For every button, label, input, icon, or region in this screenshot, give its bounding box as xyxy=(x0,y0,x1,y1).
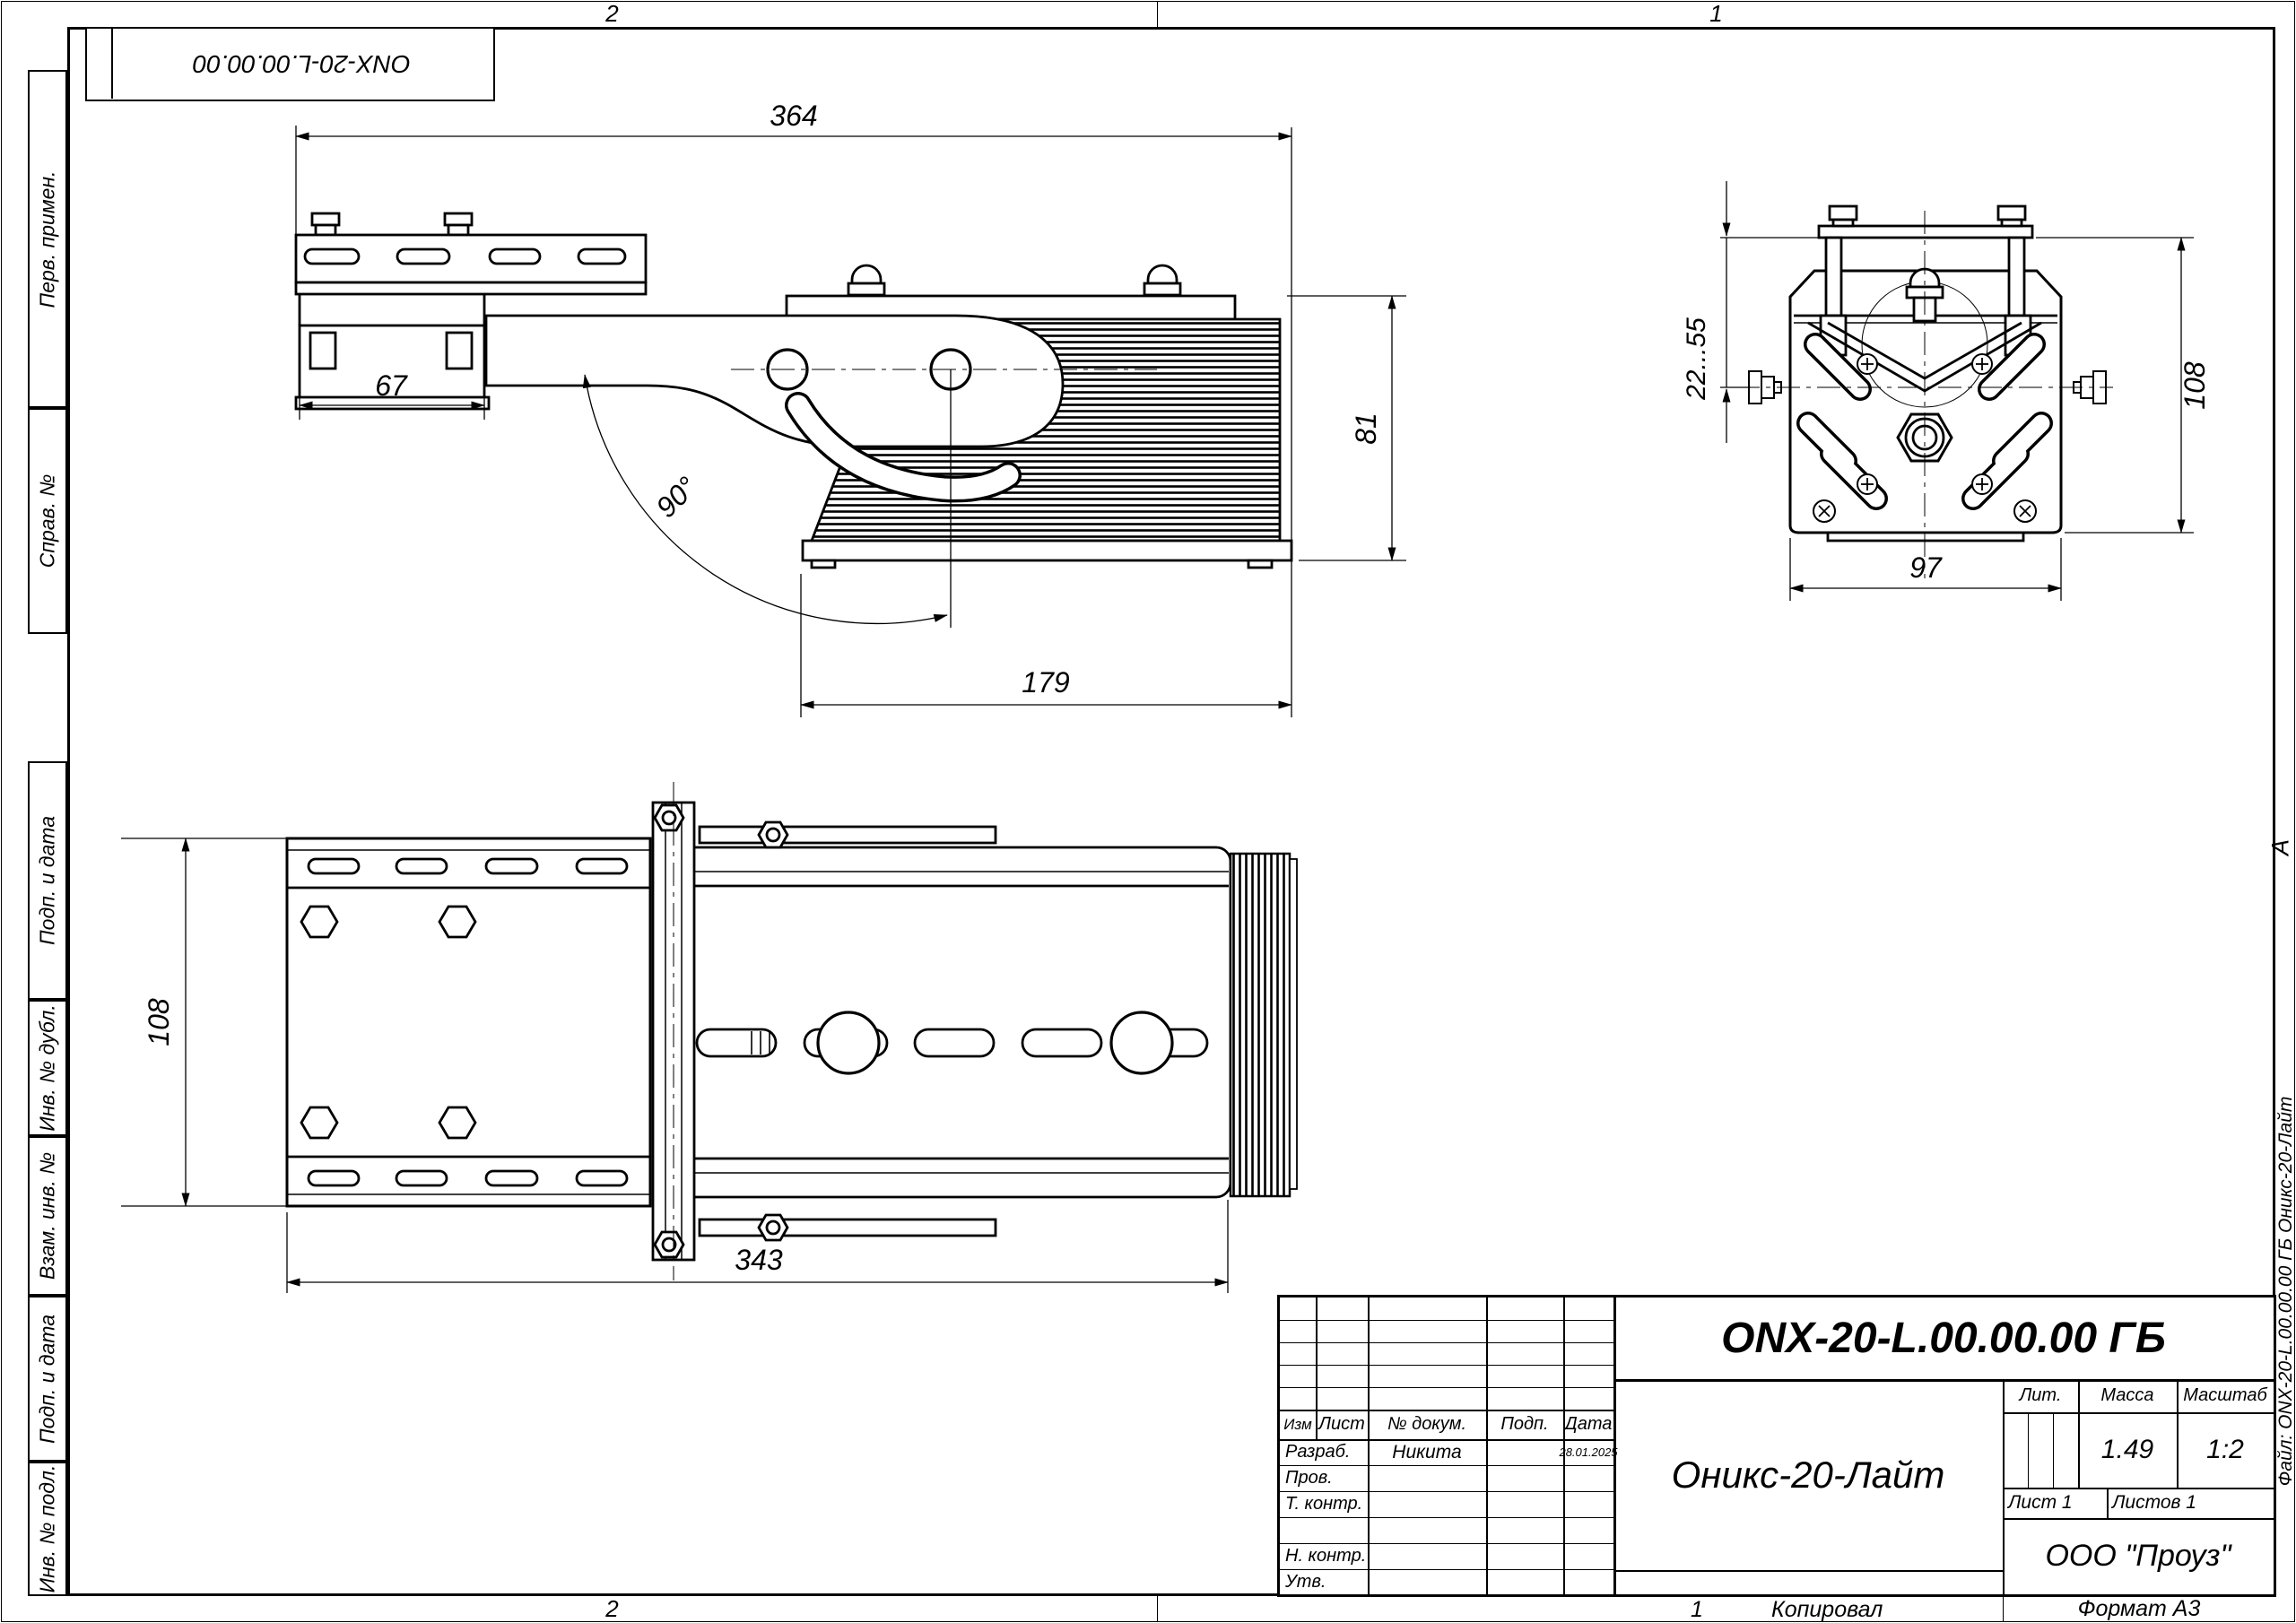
zone-top-1: 1 xyxy=(1157,1,2275,26)
stamp-inv-podl: Инв. № подл. xyxy=(28,1462,67,1596)
top-designation-stamp: ONX-20-L.00.00.00 xyxy=(85,27,495,101)
drawing-sheet: { "page": { "zone_top_left": "2", "zone_… xyxy=(0,0,2296,1623)
zone-divider xyxy=(1157,1596,1158,1622)
copied-label: Копировал xyxy=(1771,1597,1883,1623)
stamp-label: Подп. и дата xyxy=(36,1315,60,1444)
zone-marker-a: А xyxy=(2267,807,2294,888)
zone-number: 1 xyxy=(1709,0,1722,28)
col-podp: Подп. xyxy=(1486,1410,1563,1439)
col-doc: № докум. xyxy=(1368,1410,1486,1439)
col-izm: Изм xyxy=(1280,1410,1316,1439)
col-list: Лист xyxy=(1316,1410,1368,1439)
col-data: Дата xyxy=(1563,1410,1613,1439)
row-role: Утв. xyxy=(1280,1569,1368,1594)
zone-bottom-2: 2 xyxy=(67,1597,1157,1621)
zone-number: 2 xyxy=(605,1595,618,1623)
stamp-label: Взам. инв. № xyxy=(36,1152,60,1280)
stamp-podp-data-2: Подп. и дата xyxy=(28,1296,67,1462)
zone-divider xyxy=(1157,1,1158,27)
row-role: Пров. xyxy=(1280,1465,1368,1491)
zone-letter: А xyxy=(2267,839,2295,855)
stamp-inv-dubl: Инв. № дубл. xyxy=(28,1000,67,1136)
scale-value: 1:2 xyxy=(2177,1412,2274,1488)
file-note-text: Файл: ONX-20-L.00.00.00 ГБ Оникс-20-Лайт xyxy=(2275,1097,2296,1487)
zone-bottom-1: 1 xyxy=(1691,1597,1703,1623)
designation: ONX-20-L.00.00.00 ГБ xyxy=(1613,1298,2274,1379)
mass-value: 1.49 xyxy=(2078,1412,2177,1488)
stamp-sprav-no: Справ. № xyxy=(28,408,67,634)
inverted-designation: ONX-20-L.00.00.00 xyxy=(111,29,492,99)
title-block: Изм Лист № докум. Подп. Дата Разраб. Ник… xyxy=(1277,1295,2276,1597)
format-text: Формат А3 xyxy=(2078,1596,2201,1622)
row-name: Никита xyxy=(1368,1439,1486,1465)
format-label: Формат А3 xyxy=(2003,1597,2275,1621)
company-name: ООО "Проуз" xyxy=(2003,1518,2274,1594)
stamp-perv-primen: Перв. примен. xyxy=(28,70,67,408)
mass-label: Масса xyxy=(2078,1379,2177,1412)
product-name: Оникс-20-Лайт xyxy=(1613,1379,2003,1570)
stamp-vzam-inv: Взам. инв. № xyxy=(28,1136,67,1296)
zone-divider xyxy=(2003,1596,2004,1622)
row-role: Разраб. xyxy=(1280,1439,1368,1465)
stamp-label: Подп. и дата xyxy=(36,816,60,945)
stamp-label: Инв. № подл. xyxy=(36,1465,60,1593)
sheets-info: Листов 1 xyxy=(2107,1488,2274,1518)
row-role xyxy=(1280,1517,1368,1543)
sheet-info: Лист 1 xyxy=(2003,1488,2107,1518)
stamp-label: Справ. № xyxy=(36,474,60,568)
zone-top-2: 2 xyxy=(67,1,1157,26)
zone-number: 2 xyxy=(605,0,618,28)
scale-label: Масштаб xyxy=(2177,1379,2274,1412)
stamp-podp-data-1: Подп. и дата xyxy=(28,761,67,1000)
row-role: Т. контр. xyxy=(1280,1491,1368,1517)
lit-label: Лит. xyxy=(2003,1379,2078,1412)
row-role: Н. контр. xyxy=(1280,1543,1368,1569)
stamp-label: Инв. № дубл. xyxy=(36,1004,60,1131)
stamp-label: Перв. примен. xyxy=(36,170,60,308)
row-date: 28.01.2025 xyxy=(1563,1439,1613,1465)
file-note: Файл: ONX-20-L.00.00.00 ГБ Оникс-20-Лайт xyxy=(2275,982,2296,1601)
